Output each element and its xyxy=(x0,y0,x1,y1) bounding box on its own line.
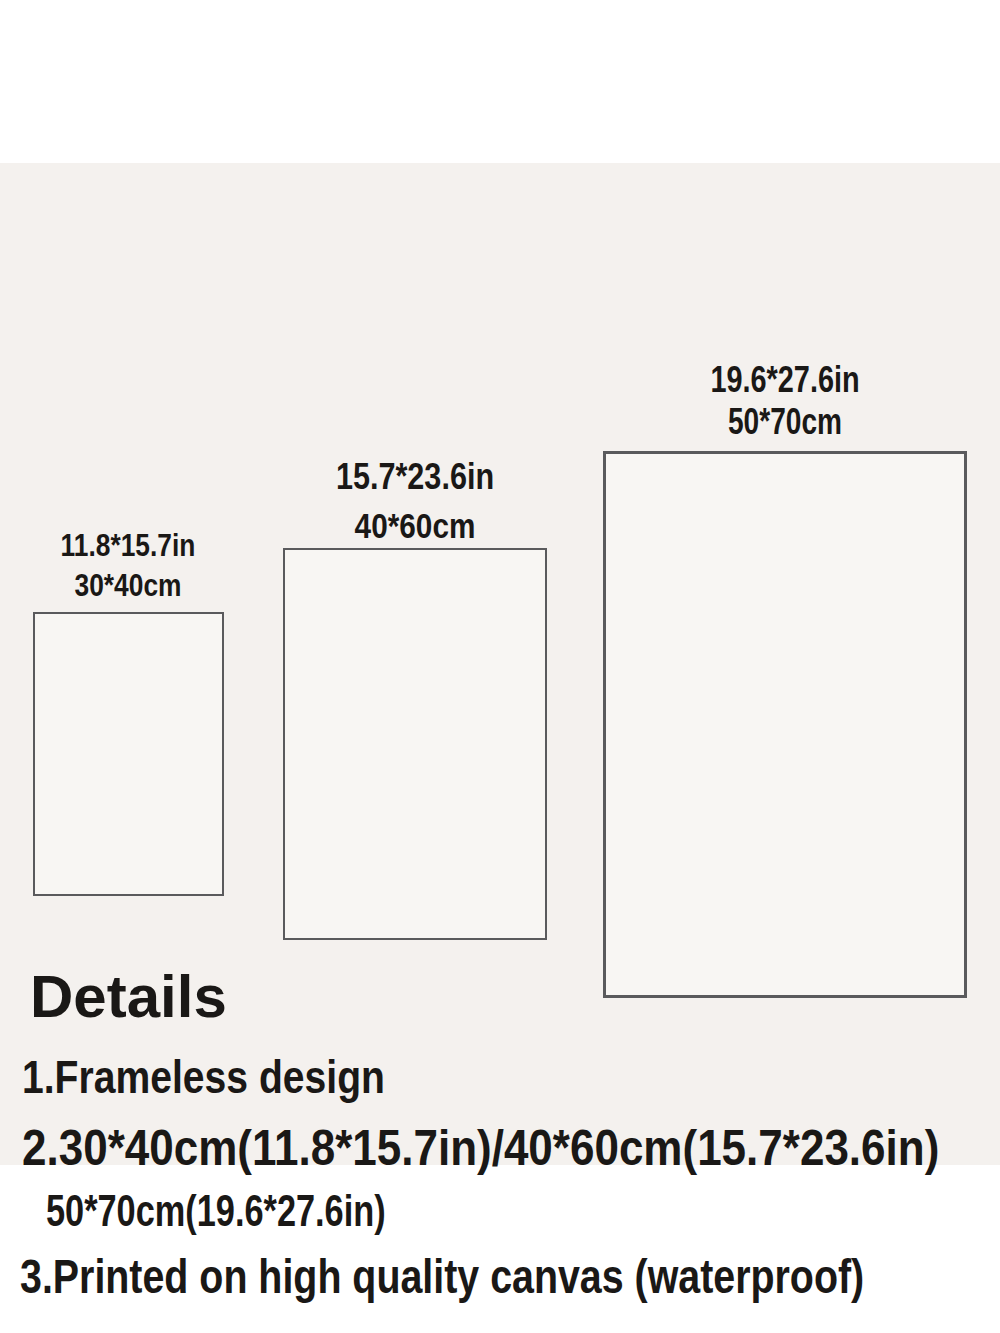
detail-line-sizes-continued-text: 50*70cm(19.6*27.6in) xyxy=(46,1189,386,1233)
size-large-inches-label: 19.6*27.6in xyxy=(689,361,880,398)
size-medium-cm-label: 40*60cm xyxy=(344,508,486,543)
detail-line-sizes-continued: 50*70cm(19.6*27.6in) xyxy=(46,1189,481,1233)
detail-line-canvas: 3.Printed on high quality canvas (waterp… xyxy=(20,1253,1000,1301)
size-large-cm-label: 50*70cm xyxy=(712,404,858,440)
detail-line-sizes-text: 2.30*40cm(11.8*15.7in)/40*60cm(15.7*23.6… xyxy=(22,1123,939,1173)
size-large-rectangle xyxy=(603,451,967,998)
size-medium-rectangle xyxy=(283,548,547,940)
detail-line-frameless: 1.Frameless design xyxy=(22,1054,449,1100)
size-small-cm-text: 30*40cm xyxy=(75,570,182,601)
detail-line-sizes: 2.30*40cm(11.8*15.7in)/40*60cm(15.7*23.6… xyxy=(22,1123,1000,1173)
size-small-inches-label: 11.8*15.7in xyxy=(49,530,208,561)
size-chart-image: 11.8*15.7in 30*40cm 15.7*23.6in 40*60cm … xyxy=(0,0,1000,1333)
size-medium-inches-text: 15.7*23.6in xyxy=(336,459,494,495)
details-heading: Details xyxy=(30,967,227,1027)
detail-line-canvas-text: 3.Printed on high quality canvas (waterp… xyxy=(20,1253,864,1301)
size-medium-inches-label: 15.7*23.6in xyxy=(322,459,508,495)
size-small-rectangle xyxy=(33,612,224,896)
detail-line-frameless-text: 1.Frameless design xyxy=(22,1054,385,1100)
size-medium-cm-text: 40*60cm xyxy=(355,508,476,543)
size-chart-panel: 11.8*15.7in 30*40cm 15.7*23.6in 40*60cm … xyxy=(0,163,1000,1165)
details-heading-text: Details xyxy=(30,967,227,1027)
size-small-inches-text: 11.8*15.7in xyxy=(61,530,196,561)
size-small-cm-label: 30*40cm xyxy=(65,570,191,601)
size-large-cm-text: 50*70cm xyxy=(728,404,842,440)
size-large-inches-text: 19.6*27.6in xyxy=(710,361,859,398)
